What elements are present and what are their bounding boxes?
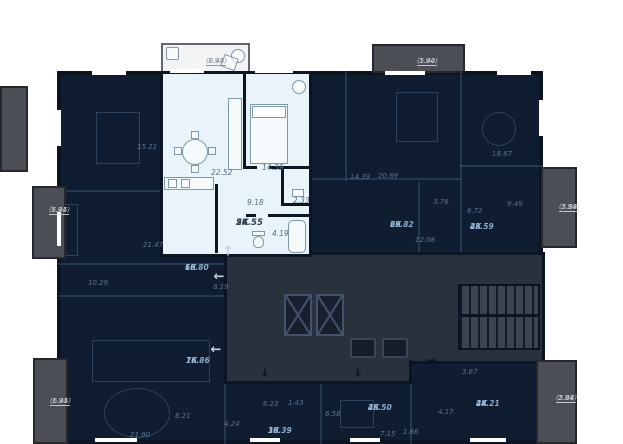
unit-1k-30-39[interactable]: [224, 384, 320, 444]
unit-2k-43-59[interactable]: [460, 71, 543, 253]
entrance-arrow-down-icon: ↓: [353, 367, 364, 380]
unit-1k-60-80[interactable]: [57, 71, 160, 264]
shaft: [382, 338, 408, 358]
balcony-neighbor: [0, 86, 28, 172]
elevator-icon: [316, 294, 344, 336]
stairs-landing: [458, 314, 540, 317]
unit-2k-44-21[interactable]: [412, 364, 543, 444]
corridor: [224, 360, 412, 384]
shaft: [350, 338, 376, 358]
washer-icon: [166, 47, 179, 60]
unit-2k-45-50[interactable]: [320, 384, 410, 444]
entrance-arrow-left-icon: ←: [214, 271, 225, 284]
label-line-2: (5.40): [417, 57, 438, 65]
unit-2k-69-82[interactable]: [312, 71, 460, 253]
label-line-1: 10.29: [88, 279, 108, 287]
label-line-2: 60.80: [185, 264, 209, 273]
unit-1k-76-86[interactable]: [57, 290, 224, 444]
entrance-arrow-down-icon: ↓: [260, 367, 271, 380]
stairs-icon: [458, 284, 540, 350]
label-line-2: (5.88): [556, 394, 577, 402]
label-line-2: (5.88): [559, 203, 580, 211]
unit-2k-54-55[interactable]: [160, 71, 312, 257]
label-line-2: (6.45): [206, 57, 227, 65]
floor-plan: 22.5214.399.182.334.192К54.551.94(6.45)1…: [0, 0, 623, 444]
elevator-icon: [284, 294, 312, 336]
